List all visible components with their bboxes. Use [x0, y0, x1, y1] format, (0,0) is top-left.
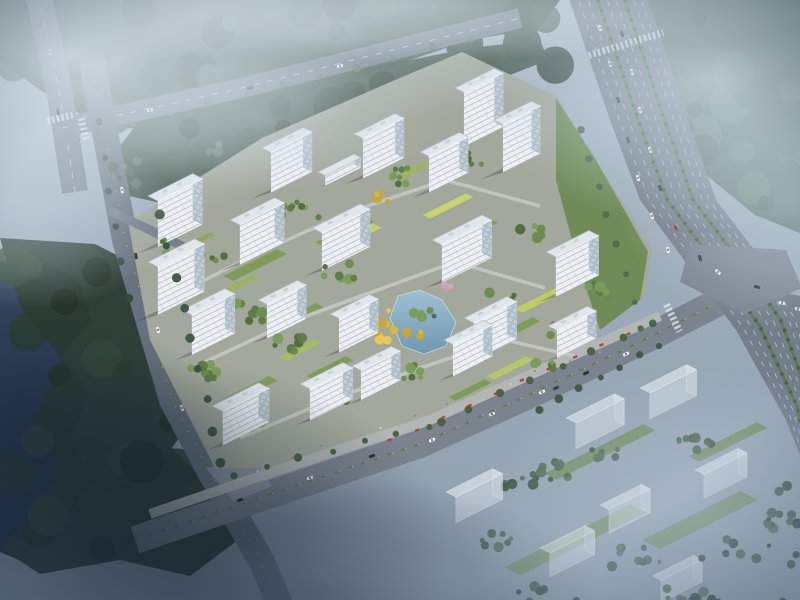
layer-fx [0, 0, 800, 600]
vignette [0, 0, 800, 600]
aerial-rendering-stage [0, 0, 800, 600]
aerial-render [0, 0, 800, 600]
